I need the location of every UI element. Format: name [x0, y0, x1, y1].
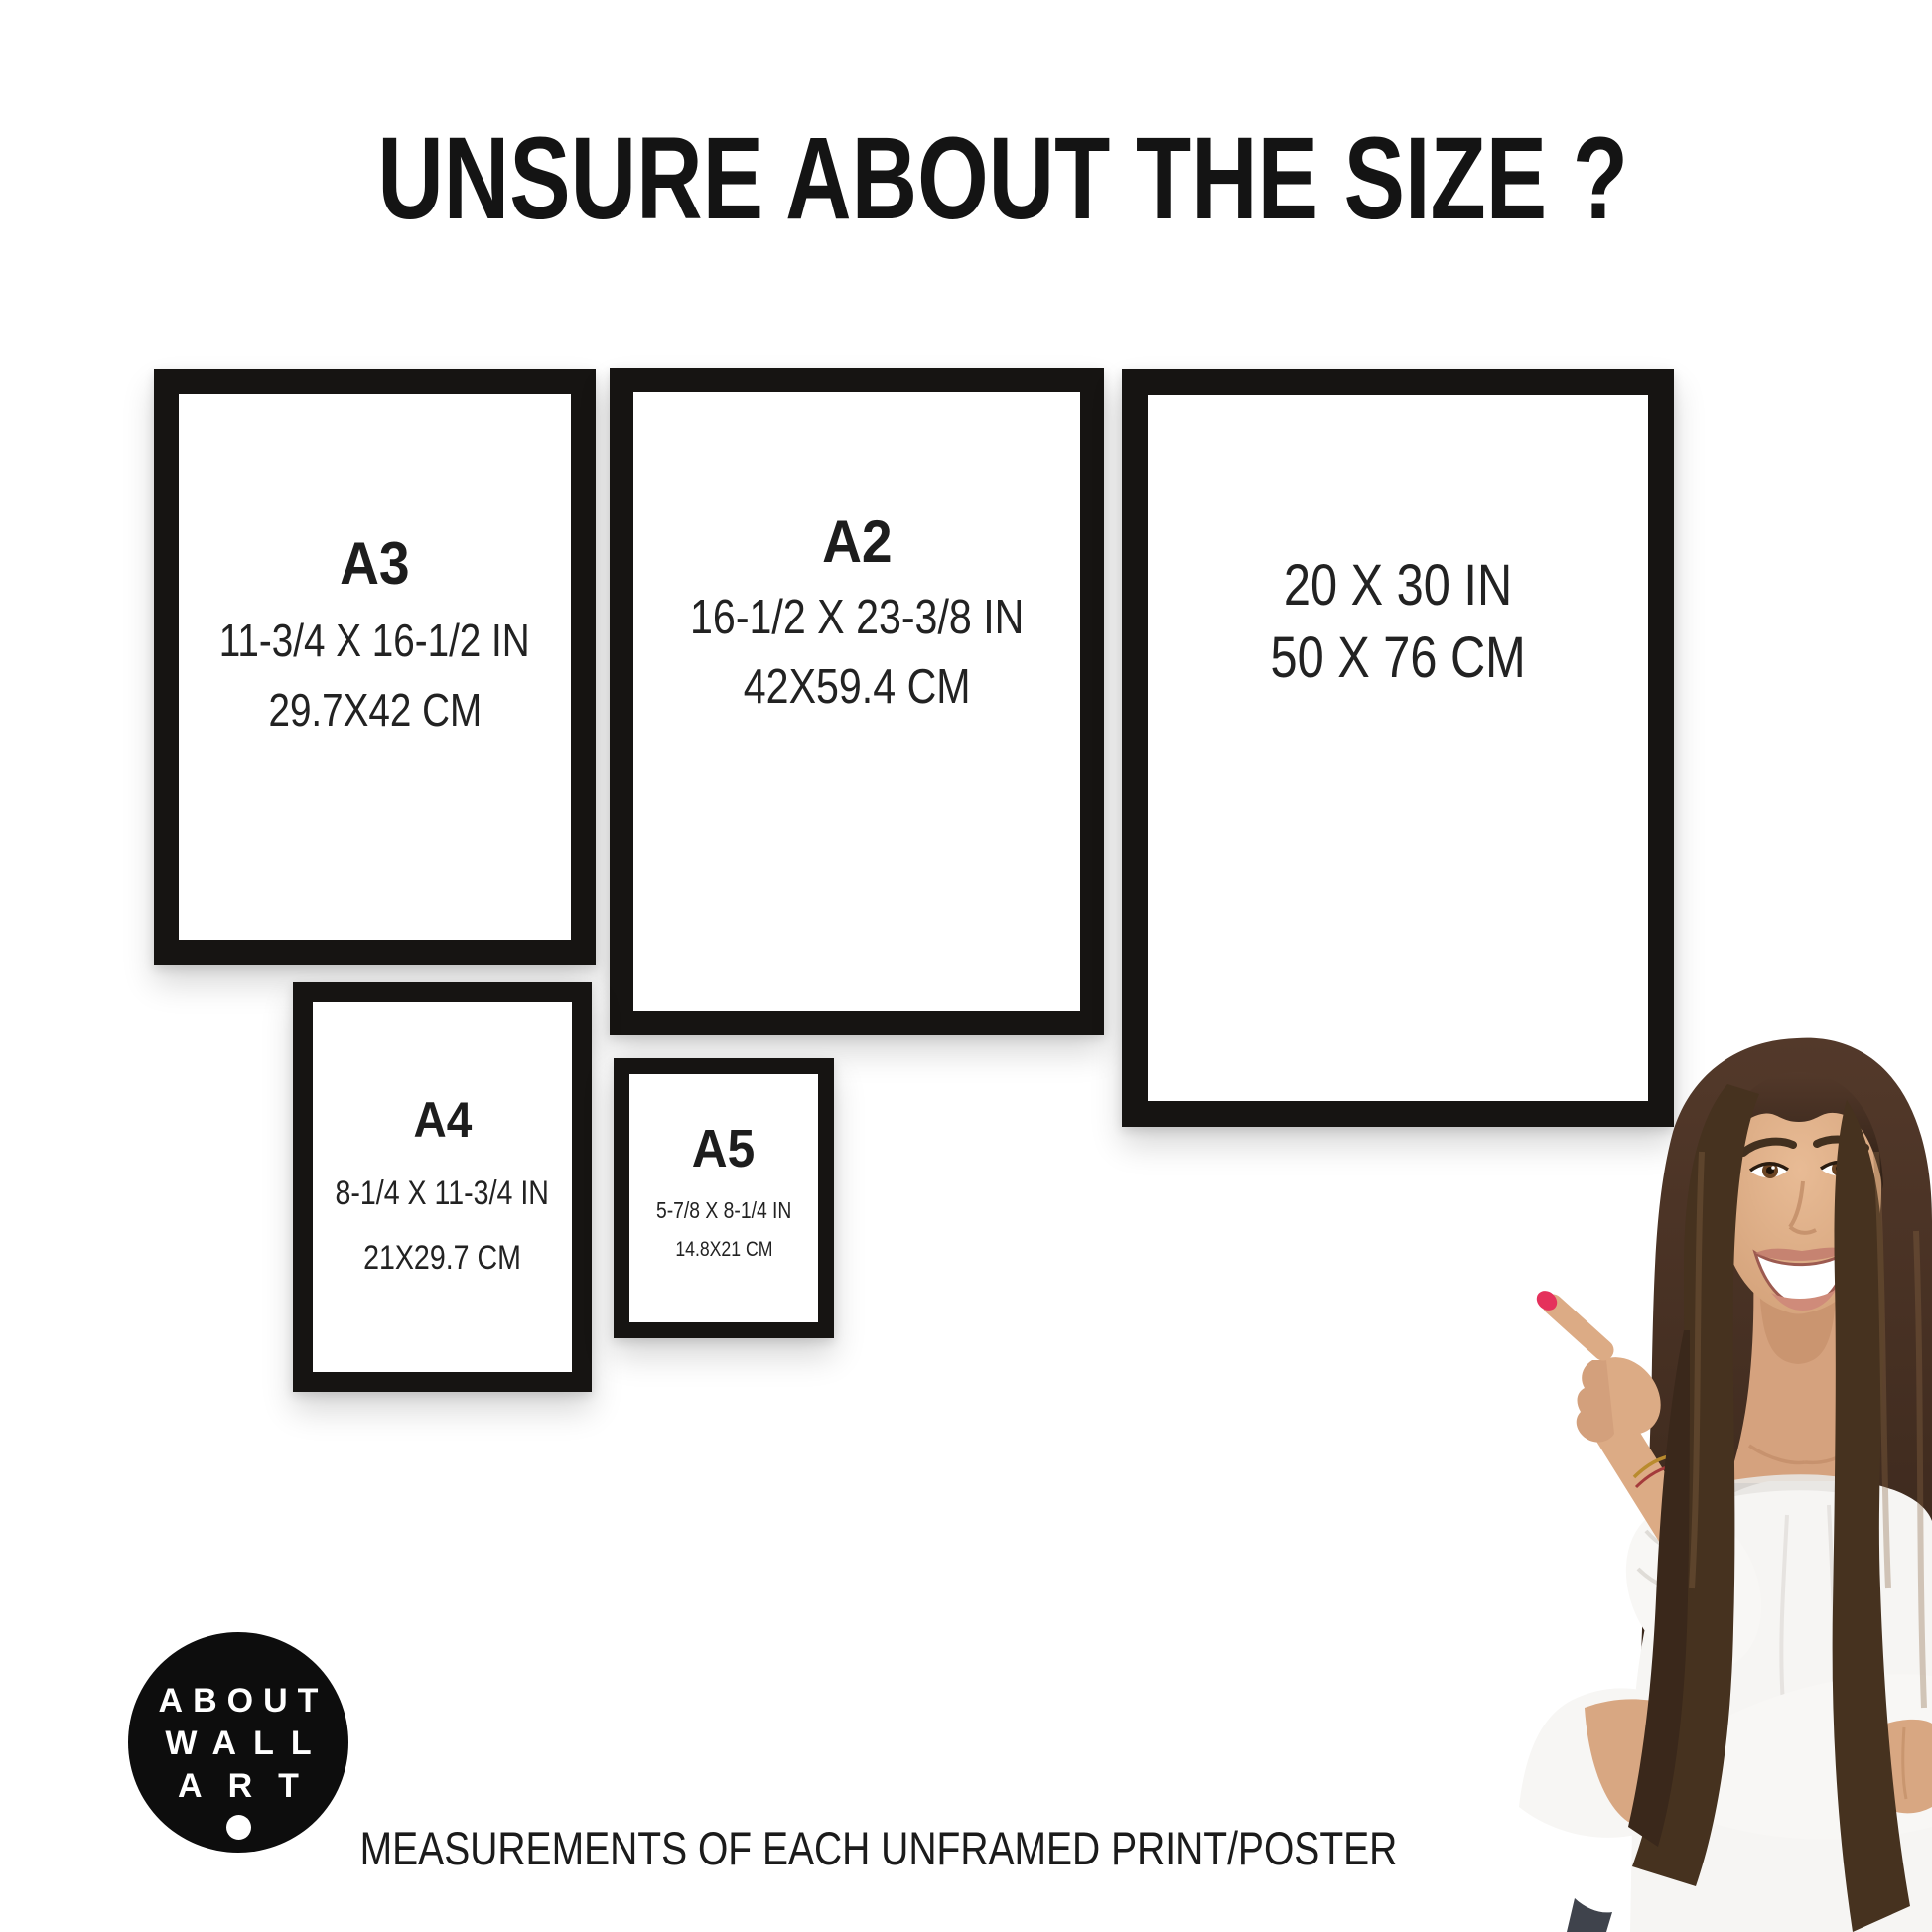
frame-a3-cm: 29.7X42 CM — [268, 683, 482, 737]
frame-a5-inches: 5-7/8 X 8-1/4 IN — [656, 1197, 791, 1224]
frame-a2-inches: 16-1/2 X 23-3/8 IN — [690, 590, 1024, 645]
brand-logo-line3: ART — [152, 1769, 325, 1803]
frame-a5-label: A5 — [692, 1118, 756, 1179]
frame-a5-cm: 14.8X21 CM — [675, 1238, 772, 1262]
frame-a3-inches: 11-3/4 X 16-1/2 IN — [219, 614, 530, 667]
frame-a2: A2 16-1/2 X 23-3/8 IN 42X59.4 CM — [610, 368, 1104, 1035]
brand-logo: ABOUT WALL ART — [128, 1632, 348, 1853]
frame-a2-cm: 42X59.4 CM — [744, 659, 971, 715]
frame-a4-cm: 21X29.7 CM — [363, 1239, 521, 1278]
size-guide-poster: UNSURE ABOUT THE SIZE ? A3 11-3/4 X 16-1… — [0, 0, 1932, 1932]
frame-a5: A5 5-7/8 X 8-1/4 IN 14.8X21 CM — [614, 1058, 834, 1338]
frame-a2-label: A2 — [822, 507, 893, 576]
frame-a4: A4 8-1/4 X 11-3/4 IN 21X29.7 CM — [293, 982, 592, 1392]
frame-a4-label: A4 — [413, 1091, 472, 1149]
page-title: UNSURE ABOUT THE SIZE ? — [249, 111, 1756, 246]
frame-a3-label: A3 — [340, 529, 410, 598]
bottom-caption: MEASUREMENTS OF EACH UNFRAMED PRINT/POST… — [149, 1821, 1607, 1875]
frame-20x30-cm: 50 X 76 CM — [1270, 624, 1525, 691]
frame-a3: A3 11-3/4 X 16-1/2 IN 29.7X42 CM — [154, 369, 596, 965]
frame-a4-inches: 8-1/4 X 11-3/4 IN — [336, 1174, 549, 1213]
frame-20x30: 20 X 30 IN 50 X 76 CM — [1122, 369, 1674, 1127]
woman-illustration — [1489, 1033, 1932, 1932]
frame-20x30-inches: 20 X 30 IN — [1284, 552, 1512, 619]
brand-logo-line2: WALL — [148, 1726, 328, 1760]
brand-logo-line1: ABOUT — [149, 1684, 329, 1718]
